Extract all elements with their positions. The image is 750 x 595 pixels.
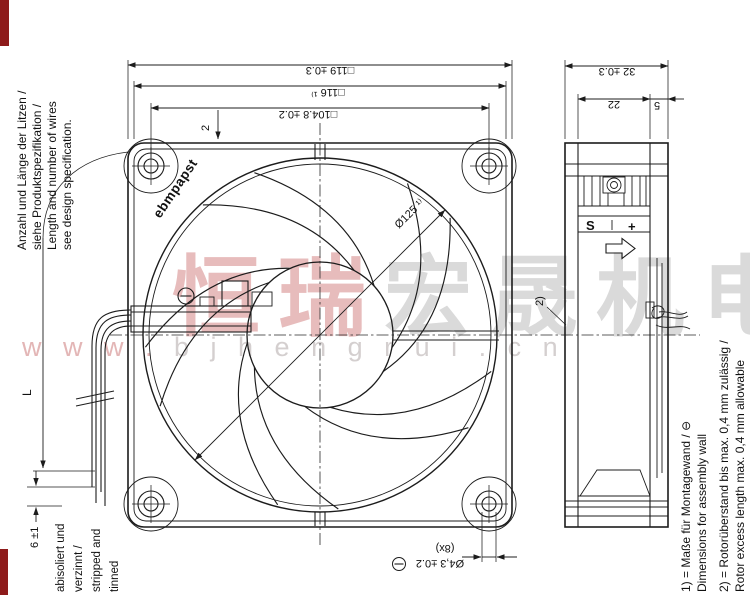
footnote-2-de: 2) = Rotorüberstand bis max. 0,4 mm zulä… xyxy=(717,340,731,592)
dim-mount-ref: □116 ¹⁾ xyxy=(311,86,345,98)
hole-diameter-label: Ø4,3 ±0.2 xyxy=(416,557,464,569)
strip-length-label: 6 ±1 xyxy=(29,527,41,548)
footnote-1-en: Dimensions for assembly wall xyxy=(695,434,709,592)
side-bottom-structure xyxy=(565,470,668,516)
wire-note-line1: Anzahl und Länge der Litzen / xyxy=(15,90,29,250)
terminal-mark-plus: + xyxy=(628,219,636,234)
wire-note-line3: Length and number of wires xyxy=(45,101,59,250)
hole-datum-symbol xyxy=(393,558,406,571)
terminal-mark-s: S xyxy=(586,218,595,233)
footnotes: 1) = Maße für Montagewand / ⊖ Dimensions… xyxy=(679,340,747,592)
footnote-2-en: Rotor excess length max. 0,4 mm allowabl… xyxy=(733,360,747,592)
drawing-page: 恒瑞宏晟机电 w w w . b j h e n g r u i . c n xyxy=(0,0,750,595)
red-bar-top-left xyxy=(0,0,9,46)
dim-body-depth: 22 xyxy=(608,98,620,110)
wire-break-mark xyxy=(76,391,114,399)
strip-note-en2: tinned xyxy=(109,561,121,592)
rotor-ref-label: 2) xyxy=(534,296,546,306)
dim-flange-thickness: 2 xyxy=(200,125,212,131)
watermark: 恒瑞宏晟机电 w w w . b j h e n g r u i . c n xyxy=(21,248,750,362)
technical-drawing: 恒瑞宏晟机电 w w w . b j h e n g r u i . c n xyxy=(0,0,750,595)
red-bar-bottom-left xyxy=(0,549,8,595)
dim-frame-size: □119 ±0.3 xyxy=(306,64,355,76)
dim-hole-spacing: □104.8 ±0.2 xyxy=(279,108,338,120)
strip-note-de1: abisoliert und xyxy=(55,524,67,592)
footnote-1-de: 1) = Maße für Montagewand / ⊖ xyxy=(679,421,693,592)
dim-venturi-diameter: Ø125 ¹⁾ xyxy=(393,197,427,231)
wire-spec-note: Anzahl und Länge der Litzen / siehe Prod… xyxy=(15,90,74,250)
dim-rotor-protrusion: 5 xyxy=(654,99,660,111)
hole-count-label: (8x) xyxy=(436,542,455,554)
wire-note-line4: see design specification. xyxy=(60,119,74,250)
dim-depth: 32 ±0.3 xyxy=(599,65,636,77)
strip-note-en1: stripped and xyxy=(91,529,103,592)
wire-break-mark xyxy=(76,398,114,406)
wire-note-line2: siehe Produktspezifikation / xyxy=(30,103,44,250)
wire-length-label: L xyxy=(20,389,34,396)
strip-note-de2: verzinnt / xyxy=(73,545,85,592)
